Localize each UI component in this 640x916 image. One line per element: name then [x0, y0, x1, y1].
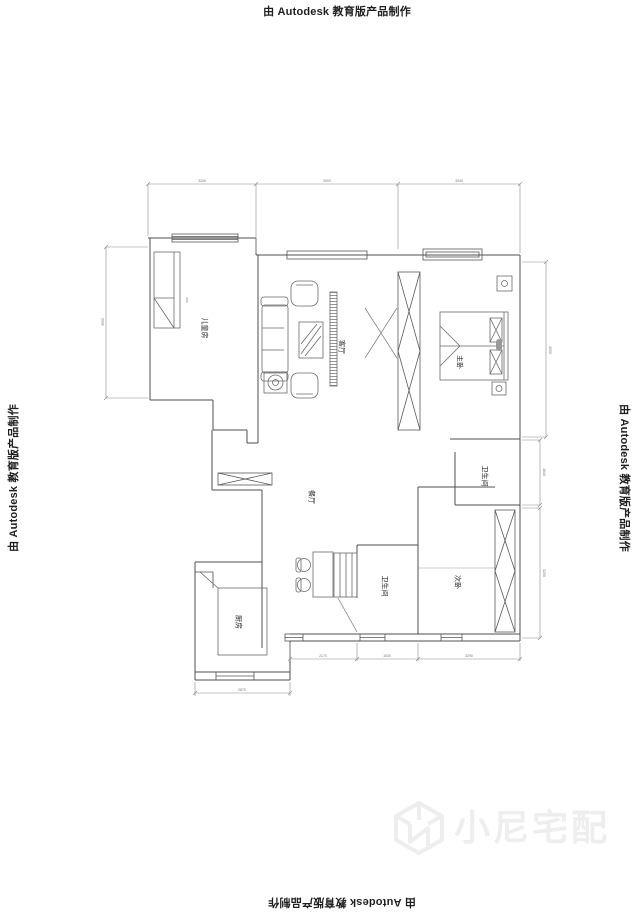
room-label-children-room: 儿童房 [201, 318, 210, 339]
armchair-bottom [291, 373, 318, 398]
shaft-x-box [218, 473, 272, 485]
dim-bottom-2: 1530 [383, 654, 391, 658]
door-swing-bathroom2 [338, 598, 357, 632]
window-bottom-1 [285, 634, 303, 641]
window-bottom-3 [441, 634, 462, 641]
bedside-lamp [496, 339, 502, 351]
floor-fan [264, 372, 287, 393]
coffee-table [299, 322, 323, 358]
children-desk [154, 252, 180, 328]
room-label-living-room: 客厅 [338, 340, 347, 354]
cube-n-icon [392, 800, 446, 856]
wardrobe-master [398, 272, 420, 430]
window-living-top [287, 251, 367, 259]
kitchen-wall-step [195, 572, 213, 588]
dim-top-2: 3900 [323, 179, 331, 183]
tv-cabinet [330, 292, 337, 386]
door-opening-x-living [365, 308, 397, 358]
window-kitchen-bottom [216, 672, 254, 680]
furniture [154, 252, 512, 655]
brand-watermark: 小尼宅配 [392, 797, 610, 859]
dim-top-3: 3340 [455, 179, 463, 183]
dining-chair-2 [296, 578, 311, 592]
kitchen-counter [200, 572, 267, 655]
dining-chair-1 [296, 558, 311, 572]
dim-bottom-1: 2170 [319, 654, 327, 658]
dining-table [313, 552, 333, 597]
dim-kitchen: 2870 [238, 688, 246, 692]
window-bottom-2 [360, 634, 385, 641]
nightstand-bottom [492, 382, 506, 395]
dim-right-3: 3250 [542, 569, 546, 577]
armchair-top [291, 281, 318, 306]
washbasin-cabinet [334, 553, 357, 597]
nightstand-top [497, 276, 512, 291]
brand-name: 小尼宅配 [454, 810, 610, 846]
room-label-bathroom-2: 卫生间 [381, 576, 390, 597]
dim-children-inner: 900 [185, 297, 189, 302]
wardrobe-second-bedroom [495, 510, 515, 632]
sofa [261, 297, 288, 381]
room-label-kitchen: 厨房 [235, 615, 244, 629]
floorplan-drawing: 3200 3900 3340 3900 4550 1640 3250 2170 … [0, 0, 640, 916]
windows [172, 234, 482, 680]
dim-left: 3900 [101, 318, 105, 326]
room-label-bathroom-1: 卫生间 [481, 466, 490, 487]
dim-right-1: 4550 [548, 346, 552, 354]
dimension-texts: 3200 3900 3340 3900 4550 1640 3250 2170 … [101, 179, 552, 692]
room-label-second-bedroom: 次卧 [454, 575, 463, 589]
room-label-master-bedroom: 主卧 [456, 355, 465, 369]
dim-right-2: 1640 [542, 468, 546, 476]
room-label-dining-room: 餐厅 [308, 490, 317, 504]
dim-top-1: 3200 [198, 179, 206, 183]
dim-bottom-3: 3290 [465, 654, 473, 658]
